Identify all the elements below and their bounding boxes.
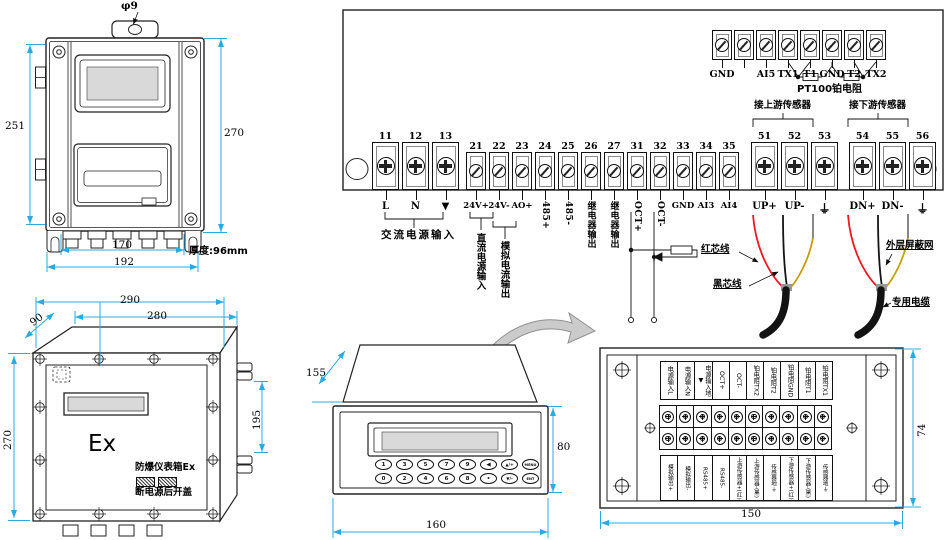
terminal-label: 24V- xyxy=(488,201,509,211)
rear-terminal-grid xyxy=(659,405,842,449)
rear-terminal xyxy=(693,427,711,450)
rear-terminal-label: 电源输入地▼ xyxy=(694,361,712,400)
ex-marking: Ex xyxy=(88,433,116,456)
terminal-block: AI5 xyxy=(756,30,776,60)
rear-terminal-label: 上游传感器-(黑) xyxy=(746,455,764,501)
keypad-key: MENU xyxy=(522,459,539,470)
screw-icon xyxy=(630,164,644,178)
rear-terminal xyxy=(814,427,832,450)
rear-top-label-row: 电源输入L电源输入N电源输入地▼OCT+OCT-铂电阻TX2铂电阻T2铂电阻GN… xyxy=(660,361,832,400)
rear-terminal-label: 铂电阻TX1 xyxy=(815,361,833,400)
dim-150: 150 xyxy=(741,508,761,520)
keypad-row-1: 13579◀▲/+MENU xyxy=(375,459,543,470)
screw-icon xyxy=(737,38,751,52)
terminal-block: 52 UP- xyxy=(781,129,808,190)
rear-terminal-label: OCT- xyxy=(729,361,747,400)
terminal-label: GND xyxy=(709,69,734,80)
screw-icon xyxy=(437,157,455,175)
terminal-block: T2 xyxy=(844,30,864,60)
screw-icon xyxy=(759,38,773,52)
pt100-terminal-row: GND AI5 TX1 T1 xyxy=(712,15,888,60)
screw-icon xyxy=(492,164,506,178)
terminal-label: OCT- xyxy=(655,201,665,227)
rear-terminal-label: 传感器地⏚ xyxy=(763,455,781,501)
terminal-number: 21 xyxy=(469,139,482,152)
terminal-block: 23 AO+ xyxy=(512,139,532,190)
rear-terminal-label: 铂电阻T2 xyxy=(763,361,781,400)
dim-80: 80 xyxy=(557,441,570,453)
screw-icon xyxy=(731,411,743,423)
rear-terminal-label: 下游传感器+(红) xyxy=(780,455,798,501)
downstream-sensor-label: 接下游传感器 xyxy=(849,101,906,111)
terminal-block: 24 485+ xyxy=(535,139,555,190)
rear-terminal xyxy=(797,405,815,428)
dim-270-left: 270 xyxy=(2,430,14,450)
terminal-label: L xyxy=(382,201,389,212)
rear-bottom-label-row: 模拟输出+模拟输出-RS485+RS485-上游传感器+(红)上游传感器-(黑)… xyxy=(660,455,832,501)
screw-icon xyxy=(817,433,829,445)
rear-terminal xyxy=(779,405,797,428)
terminal-label: OCT+ xyxy=(632,201,642,232)
rear-terminal-label: 电源输入N xyxy=(677,361,695,400)
keypad-key: 7 xyxy=(438,459,455,470)
terminal-number: 51 xyxy=(758,129,771,142)
terminal-block: T1 xyxy=(800,30,820,60)
screw-icon xyxy=(607,164,621,178)
rear-terminal-label: 下游传感器-(黑) xyxy=(798,455,816,501)
hatch-mark xyxy=(136,477,155,487)
rear-terminal xyxy=(659,427,677,450)
screw-icon xyxy=(817,411,829,423)
terminal-label: AI3 xyxy=(698,201,715,211)
terminal-number: 22 xyxy=(492,139,505,152)
rear-terminal-label: 模拟输出- xyxy=(677,455,695,501)
terminal-number: 32 xyxy=(653,139,666,152)
dim-195: 195 xyxy=(251,410,263,430)
rear-terminal xyxy=(797,427,815,450)
terminal-label: GND xyxy=(672,201,694,211)
terminal-block: 56 ⏚ xyxy=(909,129,936,190)
rear-terminal xyxy=(676,405,694,428)
terminal-block: 27 继电器输出 xyxy=(604,139,624,190)
screw-icon xyxy=(679,411,691,423)
keypad-key: 5 xyxy=(417,459,434,470)
explosion-proof-label: 防爆仪表箱Ex xyxy=(135,463,195,473)
keypad-row-2: 02468•▼/-ENT xyxy=(375,473,543,484)
terminal-label: AI5 xyxy=(757,69,775,80)
terminal-label: DN- xyxy=(882,201,904,212)
terminal-number: 31 xyxy=(630,139,643,152)
terminal-number: 54 xyxy=(856,129,869,142)
analog-out-label: 模拟电流输出 xyxy=(499,241,509,298)
screw-icon xyxy=(407,157,425,175)
screw-icon xyxy=(696,411,708,423)
terminal-number: 13 xyxy=(439,129,452,142)
terminal-block: 33 GND xyxy=(673,139,693,190)
rear-terminal xyxy=(814,405,832,428)
dc-power-label: 直流电源输入 xyxy=(475,233,485,290)
terminal-block: 11 L xyxy=(372,129,399,190)
leader-arrows xyxy=(739,252,892,307)
screw-icon xyxy=(715,38,729,52)
ex-box-drawing: 290 280 90 270 195 Ex 防爆仪表箱Ex 断电源后开盖 xyxy=(0,290,340,540)
dim-270: 270 xyxy=(224,127,244,139)
dim-155: 155 xyxy=(306,367,326,379)
terminal-label: TX2 xyxy=(865,69,886,80)
terminal-label: 24V+ xyxy=(463,201,489,211)
terminal-label: 485- xyxy=(563,201,573,226)
technical-drawing-sheet: φ9 251 270 170 192 厚度:96mm xyxy=(0,0,948,540)
terminal-number: 26 xyxy=(584,139,597,152)
ex-box-art xyxy=(0,290,340,540)
main-terminal-row: 11 L 12 N 13 ▼ 21 xyxy=(372,128,939,190)
rear-terminal xyxy=(711,405,729,428)
rear-terminal-label: 铂电阻GND xyxy=(780,361,798,400)
terminal-label: N xyxy=(411,201,420,212)
screw-icon xyxy=(765,433,777,445)
screw-icon xyxy=(714,411,726,423)
screw-icon xyxy=(515,164,529,178)
screw-icon xyxy=(731,433,743,445)
screw-icon xyxy=(847,38,861,52)
panel-meter-art xyxy=(300,335,600,540)
rear-terminal-label: 传感器地⏚ xyxy=(815,455,833,501)
screw-icon xyxy=(561,164,575,178)
screw-icon xyxy=(786,157,804,175)
rear-terminal xyxy=(659,405,677,428)
terminal-block: GND xyxy=(712,30,732,60)
terminal-label: UP- xyxy=(785,201,805,212)
dim-160: 160 xyxy=(426,519,446,531)
ac-power-label: 交流电源输入 xyxy=(381,230,456,241)
terminal-block: 32 OCT- xyxy=(650,139,670,190)
screw-icon xyxy=(869,38,883,52)
terminal-block: 13 ▼ xyxy=(432,129,459,190)
wiring-diagram: GND AI5 TX1 T1 xyxy=(335,0,948,345)
terminal-block: 25 485- xyxy=(558,139,578,190)
terminal-label: ⏚ xyxy=(916,200,928,217)
terminal-number: 11 xyxy=(379,129,392,142)
pt100-label: PT100铂电阻 xyxy=(797,85,862,95)
terminal-number: 34 xyxy=(699,139,712,152)
open-warning-label: 断电源后开盖 xyxy=(135,488,192,498)
keypad-key: 0 xyxy=(375,473,392,484)
special-cable xyxy=(763,290,786,335)
screw-icon xyxy=(748,411,760,423)
terminal-label: T1 xyxy=(803,69,817,80)
terminal-label: 继电器输出 xyxy=(608,201,621,249)
rear-terminal-label: 铂电阻TX2 xyxy=(746,361,764,400)
terminal-number: 52 xyxy=(788,129,801,142)
screw-icon xyxy=(653,164,667,178)
screw-icon xyxy=(782,433,794,445)
terminal-label: T2 xyxy=(847,69,861,80)
terminal-block: 51 UP+ xyxy=(751,129,778,190)
terminal-number: 56 xyxy=(916,129,929,142)
keypad-key: 9 xyxy=(459,459,476,470)
upstream-sensor-label: 接上游传感器 xyxy=(754,101,811,111)
rear-terminal xyxy=(693,405,711,428)
rear-terminal xyxy=(745,405,763,428)
keypad-key: 6 xyxy=(438,473,455,484)
rear-terminal xyxy=(762,427,780,450)
terminal-number: 27 xyxy=(607,139,620,152)
screw-icon xyxy=(722,164,736,178)
thickness-label: 厚度:96mm xyxy=(189,247,248,257)
keypad-key: ◀ xyxy=(480,459,497,470)
rear-terminal-label: OCT+ xyxy=(712,361,730,400)
shield-net-label: 外层屏蔽网 xyxy=(886,241,934,251)
dim-280: 280 xyxy=(147,310,167,322)
terminal-block: 26 继电器输出 xyxy=(581,139,601,190)
screw-icon xyxy=(781,38,795,52)
terminal-block: 31 OCT+ xyxy=(627,139,647,190)
terminal-number: 25 xyxy=(561,139,574,152)
screw-icon xyxy=(825,38,839,52)
terminal-label: ▼ xyxy=(442,201,450,212)
rear-terminal xyxy=(676,427,694,450)
screw-icon xyxy=(816,157,834,175)
dim-170: 170 xyxy=(112,239,132,251)
dim-290: 290 xyxy=(120,294,140,306)
rear-terminal xyxy=(745,427,763,450)
terminal-label: ⏚ xyxy=(818,200,830,217)
screw-icon xyxy=(782,411,794,423)
screw-icon xyxy=(803,38,817,52)
terminal-number: 55 xyxy=(886,129,899,142)
black-core-wire-label: 黑芯线 xyxy=(713,280,742,290)
terminal-block: TX1 xyxy=(778,30,798,60)
terminal-number: 23 xyxy=(515,139,528,152)
screw-icon xyxy=(679,433,691,445)
rear-terminal-label: 模拟输出+ xyxy=(660,455,678,501)
screw-icon xyxy=(800,433,812,445)
hatch-mark xyxy=(158,477,177,487)
hole-diameter-dim: φ9 xyxy=(121,0,138,12)
screw-icon xyxy=(662,433,674,445)
terminal-number: 53 xyxy=(818,129,831,142)
terminal-label: DN+ xyxy=(849,201,875,212)
dim-74: 74 xyxy=(916,424,928,437)
screw-icon xyxy=(914,157,932,175)
terminal-block: 53 ⏚ xyxy=(811,129,838,190)
rear-terminal-label: RS485- xyxy=(712,455,730,501)
terminal-block: 22 24V- xyxy=(489,139,509,190)
terminal-number: 12 xyxy=(409,129,422,142)
keypad-key: ENT xyxy=(522,473,539,484)
rear-terminal-label: 电源输入L xyxy=(660,361,678,400)
terminal-number: 24 xyxy=(538,139,551,152)
keypad-key: ▼/- xyxy=(501,473,518,484)
terminal-label: AO+ xyxy=(511,201,532,211)
terminal-label: 继电器输出 xyxy=(585,201,598,249)
terminal-block: 35 AI4 xyxy=(719,139,739,190)
screw-icon xyxy=(584,164,598,178)
screw-icon xyxy=(696,433,708,445)
terminal-label: UP+ xyxy=(752,201,777,212)
panel-meter-drawing: 13579◀▲/+MENU 02468•▼/-ENT 155 80 160 xyxy=(300,335,600,540)
rear-terminal-label: 铂电阻T1 xyxy=(798,361,816,400)
terminal-block: TX2 xyxy=(866,30,886,60)
front-view-drawing: φ9 251 270 170 192 厚度:96mm xyxy=(0,0,262,300)
rear-terminal-label: RS485+ xyxy=(694,455,712,501)
screw-icon xyxy=(854,157,872,175)
screw-icon xyxy=(765,411,777,423)
terminal-number: 35 xyxy=(722,139,735,152)
rear-terminal xyxy=(728,427,746,450)
rear-terminal-drawing: 电源输入L电源输入N电源输入地▼OCT+OCT-铂电阻TX2铂电阻T2铂电阻GN… xyxy=(595,345,948,540)
terminal-block: 55 DN- xyxy=(879,129,906,190)
keypad-key: • xyxy=(480,473,497,484)
rear-terminal-label: 上游传感器+(红) xyxy=(729,455,747,501)
sensor-wires xyxy=(753,215,908,290)
keypad-key: 2 xyxy=(396,473,413,484)
keypad-key: 4 xyxy=(417,473,434,484)
rear-terminal xyxy=(762,405,780,428)
special-cable xyxy=(858,290,881,335)
screw-icon xyxy=(756,157,774,175)
special-cable-label: 专用电缆 xyxy=(892,298,930,308)
screw-icon xyxy=(662,411,674,423)
keypad-key: 3 xyxy=(396,459,413,470)
terminal-label: GND xyxy=(819,69,844,80)
keypad-key: ▲/+ xyxy=(501,459,518,470)
screw-icon xyxy=(748,433,760,445)
rear-terminal xyxy=(728,405,746,428)
terminal-number: 33 xyxy=(676,139,689,152)
screw-icon xyxy=(800,411,812,423)
terminal-block: 21 24V+ xyxy=(466,139,486,190)
screw-icon xyxy=(699,164,713,178)
terminal-block: 54 DN+ xyxy=(849,129,876,190)
screw-icon xyxy=(538,164,552,178)
terminal-block: GND xyxy=(822,30,842,60)
red-core-wire-label: 红芯线 xyxy=(701,245,730,255)
terminal-block: 12 N xyxy=(402,129,429,190)
keypad-key: 1 xyxy=(375,459,392,470)
screw-icon xyxy=(676,164,690,178)
keypad-key: 8 xyxy=(459,473,476,484)
rear-terminal xyxy=(711,427,729,450)
rear-terminal xyxy=(779,427,797,450)
dim-251: 251 xyxy=(5,120,25,132)
screw-icon xyxy=(884,157,902,175)
dim-192: 192 xyxy=(114,256,134,268)
terminal-block xyxy=(734,30,754,60)
screw-icon xyxy=(377,157,395,175)
terminal-label: AI4 xyxy=(721,201,738,211)
screw-icon xyxy=(469,164,483,178)
terminal-label: 485+ xyxy=(540,201,550,229)
terminal-block: 34 AI3 xyxy=(696,139,716,190)
terminal-label: TX1 xyxy=(777,69,798,80)
screw-icon xyxy=(714,433,726,445)
